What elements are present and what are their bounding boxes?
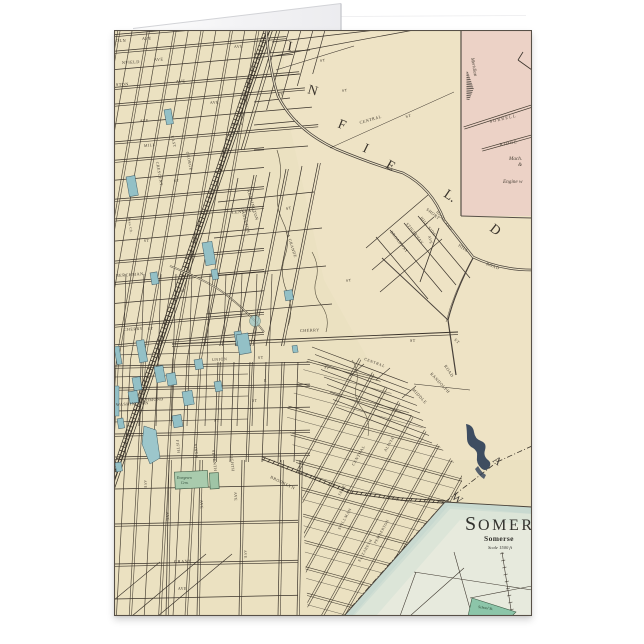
svg-text:ST: ST <box>148 327 154 331</box>
svg-text:OLN: OLN <box>116 38 126 43</box>
svg-text:AVE: AVE <box>210 99 220 105</box>
svg-text:AVE: AVE <box>199 500 205 510</box>
svg-text:ST: ST <box>346 277 352 283</box>
svg-text:NFIELD: NFIELD <box>122 59 140 65</box>
svg-text:UNION: UNION <box>212 356 228 362</box>
svg-text:ST: ST <box>174 179 180 183</box>
svg-text:Somerse: Somerse <box>484 534 514 543</box>
svg-text:AVE: AVE <box>142 36 152 41</box>
svg-text:ST: ST <box>410 338 416 343</box>
svg-text:Engine w: Engine w <box>502 179 523 185</box>
svg-text:Evergreen: Evergreen <box>176 476 192 480</box>
svg-text:AVE: AVE <box>165 512 171 522</box>
svg-text:ST: ST <box>320 57 326 63</box>
svg-text:ST: ST <box>264 270 270 275</box>
svg-text:Cem.: Cem. <box>181 481 189 485</box>
svg-text:S: S <box>465 513 476 535</box>
svg-text:AVE: AVE <box>233 492 239 502</box>
svg-text:AVE: AVE <box>140 118 149 123</box>
svg-text:ST: ST <box>252 399 258 403</box>
svg-text:AVE: AVE <box>178 587 187 591</box>
svg-text:ST: ST <box>180 289 186 293</box>
svg-text:Scale 1500 ft: Scale 1500 ft <box>488 545 513 550</box>
svg-text:AVE: AVE <box>154 57 164 62</box>
svg-text:STON: STON <box>116 81 129 87</box>
svg-text:AVE: AVE <box>176 78 186 84</box>
svg-text:MILL: MILL <box>144 142 156 148</box>
svg-text:ST: ST <box>286 205 292 211</box>
svg-text:ST: ST <box>144 239 150 243</box>
svg-text:ST: ST <box>278 91 284 97</box>
svg-text:AVE: AVE <box>243 550 247 559</box>
svg-text:GRANT: GRANT <box>174 559 192 564</box>
svg-text:E: E <box>264 379 267 383</box>
svg-text:ST: ST <box>214 419 220 423</box>
svg-text:AVE: AVE <box>143 480 147 489</box>
svg-text:ST: ST <box>258 355 264 360</box>
svg-text:OMERV: OMERV <box>478 517 532 534</box>
svg-text:ST: ST <box>342 87 348 93</box>
svg-text:CHERRY: CHERRY <box>300 327 320 333</box>
svg-text:AVE: AVE <box>234 44 244 49</box>
